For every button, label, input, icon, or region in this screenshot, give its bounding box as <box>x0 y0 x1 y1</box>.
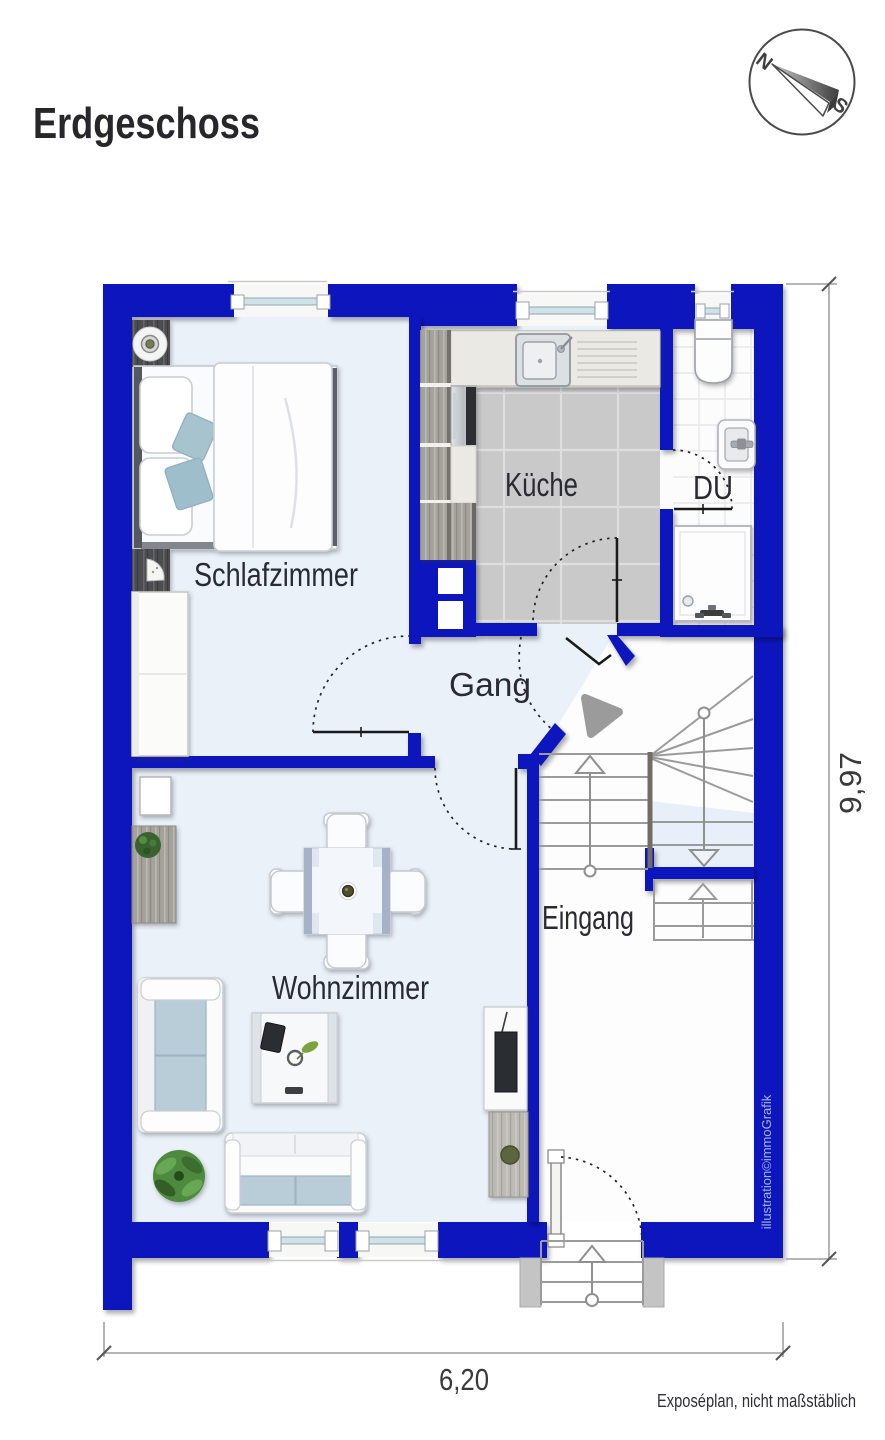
svg-text:Küche: Küche <box>505 466 578 503</box>
svg-text:9,97: 9,97 <box>833 752 868 814</box>
svg-text:Exposéplan, nicht maßstäblich: Exposéplan, nicht maßstäblich <box>657 1391 856 1411</box>
svg-text:Gang: Gang <box>449 666 531 703</box>
svg-text:6,20: 6,20 <box>439 1362 489 1397</box>
svg-text:Wohnzimmer: Wohnzimmer <box>272 969 429 1006</box>
svg-text:Eingang: Eingang <box>542 899 634 936</box>
svg-text:Schlafzimmer: Schlafzimmer <box>194 556 358 593</box>
svg-text:DU: DU <box>693 469 733 506</box>
svg-text:Erdgeschoss: Erdgeschoss <box>33 99 260 148</box>
svg-text:illustration©immoGrafik: illustration©immoGrafik <box>759 1094 774 1229</box>
